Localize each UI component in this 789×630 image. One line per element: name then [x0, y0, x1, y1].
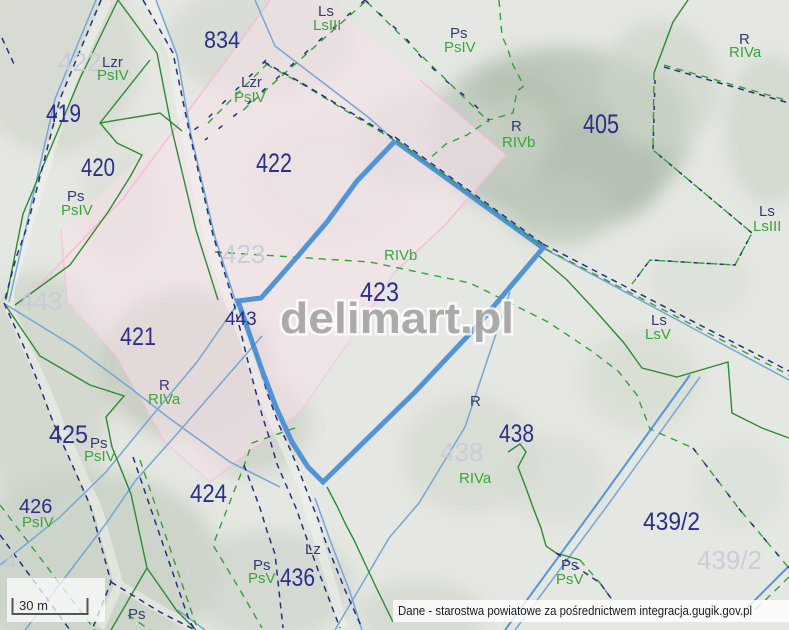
svg-text:423: 423	[360, 277, 399, 307]
svg-text:834: 834	[204, 27, 240, 54]
svg-text:R: R	[511, 118, 522, 135]
svg-text:RIVb: RIVb	[502, 134, 535, 151]
svg-text:PsIV: PsIV	[22, 514, 54, 531]
svg-text:RIVa: RIVa	[148, 391, 181, 408]
svg-text:421: 421	[120, 323, 156, 351]
svg-text:Dane - starostwa powiatowe za: Dane - starostwa powiatowe za pośrednict…	[398, 604, 752, 618]
svg-text:423: 423	[222, 239, 265, 269]
svg-text:439/2: 439/2	[697, 545, 762, 575]
svg-text:405: 405	[583, 109, 619, 139]
svg-text:420: 420	[81, 154, 115, 182]
svg-text:R: R	[470, 393, 481, 410]
svg-text:425: 425	[49, 421, 88, 449]
svg-text:RIVa: RIVa	[729, 44, 762, 61]
svg-text:30 m: 30 m	[19, 598, 48, 613]
svg-text:RIVa: RIVa	[459, 470, 492, 487]
svg-text:PsIV: PsIV	[97, 67, 129, 84]
svg-text:LsIII: LsIII	[753, 218, 781, 235]
svg-text:436: 436	[280, 564, 315, 592]
svg-text:443: 443	[19, 286, 62, 316]
svg-text:443: 443	[225, 309, 257, 330]
svg-text:LsV: LsV	[645, 326, 671, 343]
svg-text:439/2: 439/2	[643, 508, 700, 536]
svg-text:438: 438	[440, 437, 483, 467]
svg-text:RIVb: RIVb	[384, 247, 417, 264]
svg-text:PsIV: PsIV	[84, 448, 116, 465]
svg-text:424: 424	[0, 546, 17, 576]
svg-text:PsV: PsV	[248, 570, 276, 587]
svg-text:438: 438	[499, 420, 534, 448]
svg-text:PsV: PsV	[556, 571, 584, 588]
svg-text:PsIV: PsIV	[234, 89, 266, 106]
svg-text:PsIV: PsIV	[444, 39, 476, 56]
svg-text:422: 422	[58, 47, 101, 77]
svg-text:419: 419	[46, 100, 81, 128]
svg-text:PsIV: PsIV	[61, 202, 93, 219]
svg-text:422: 422	[256, 148, 292, 178]
svg-text:LsIII: LsIII	[313, 17, 341, 34]
svg-text:Ps: Ps	[128, 606, 146, 623]
svg-text:424: 424	[190, 480, 227, 508]
svg-text:Lz: Lz	[305, 541, 321, 558]
